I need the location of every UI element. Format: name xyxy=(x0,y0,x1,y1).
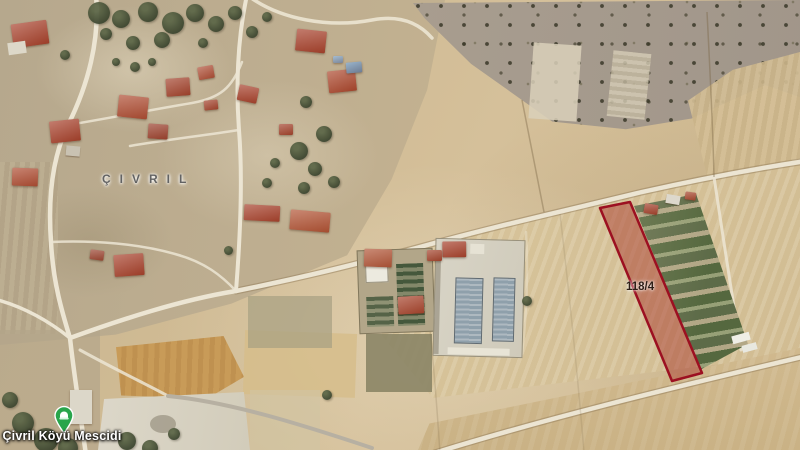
poi-label[interactable]: Çivril Köyü Mescidi xyxy=(0,429,144,443)
place-watermark: ÇIVRIL xyxy=(102,172,242,186)
satellite-map-viewport[interactable]: 118/4 ÇIVRIL Çivril Köyü Mescidi xyxy=(0,0,800,450)
parcel-overlay xyxy=(0,0,800,450)
parcel-label: 118/4 xyxy=(626,281,676,293)
